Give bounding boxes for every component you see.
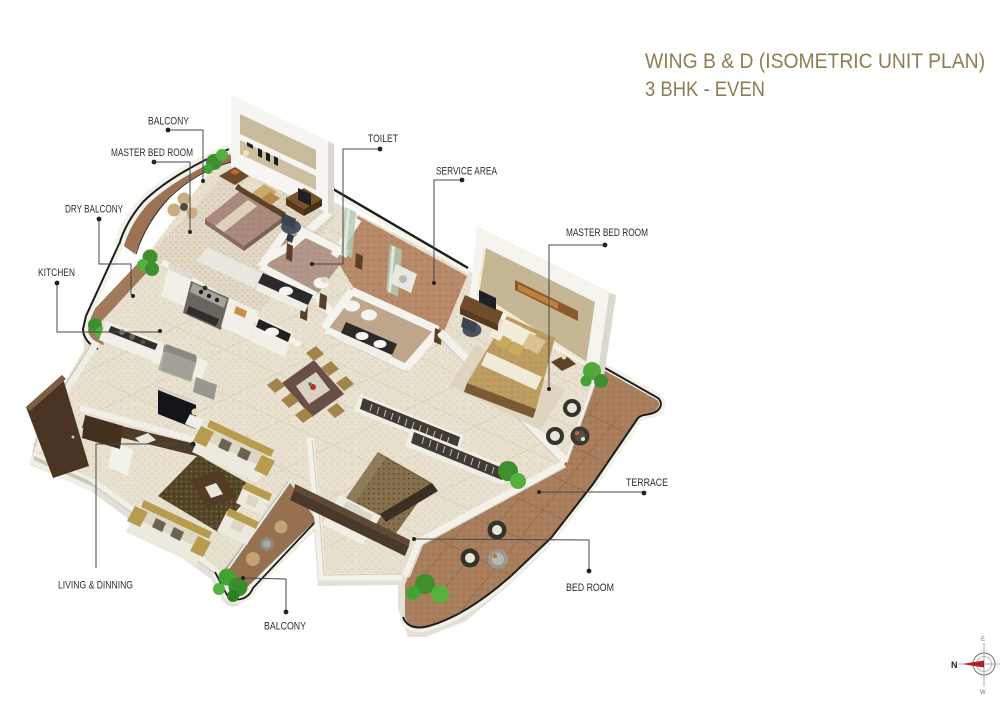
svg-text:WING B & D (ISOMETRIC UNIT PLA: WING B & D (ISOMETRIC UNIT PLAN) [645,50,985,73]
svg-text:W: W [980,690,986,696]
svg-text:SERVICE AREA: SERVICE AREA [436,166,497,178]
svg-text:LIVING & DINNING: LIVING & DINNING [58,580,133,592]
svg-text:N: N [951,660,958,670]
svg-text:DRY BALCONY: DRY BALCONY [65,204,123,216]
svg-text:MASTER BED ROOM: MASTER BED ROOM [566,227,648,239]
svg-text:TERRACE: TERRACE [626,477,668,489]
svg-text:BALCONY: BALCONY [264,621,307,633]
svg-text:MASTER BED ROOM: MASTER BED ROOM [111,147,193,159]
svg-text:TOILET: TOILET [368,133,398,145]
svg-text:3 BHK - EVEN: 3 BHK - EVEN [645,78,765,101]
svg-text:E: E [981,637,985,643]
svg-text:BED ROOM: BED ROOM [566,582,614,594]
svg-text:BALCONY: BALCONY [148,116,190,128]
svg-text:KITCHEN: KITCHEN [38,267,75,279]
